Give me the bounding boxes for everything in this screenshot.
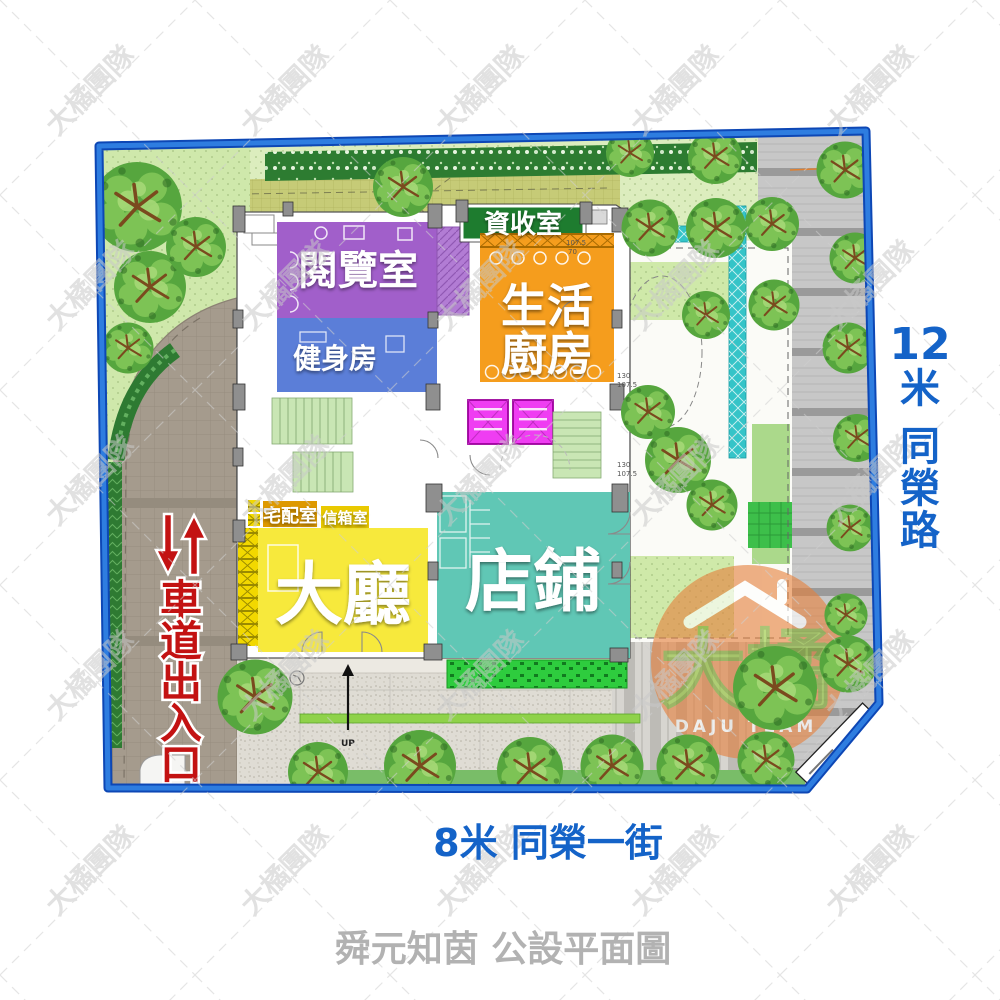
svg-text:130: 130 — [617, 461, 630, 469]
road-width-number: 12 — [889, 322, 950, 368]
site-plan-page: 大橘團隊 — [0, 0, 1000, 1000]
shop-front-hedge — [447, 660, 627, 688]
road-width-unit: 米 — [900, 368, 940, 410]
svg-text:107.5: 107.5 — [617, 381, 637, 389]
svg-text:107.5: 107.5 — [566, 239, 586, 247]
lobby-label: 大廳 — [275, 556, 411, 635]
street-label-bottom: 8米 同榮一街 — [433, 812, 663, 867]
road-name-char: 路 — [900, 510, 940, 552]
road-name-char: 同 — [900, 426, 940, 468]
reading-label: 閱覽室 — [298, 248, 418, 294]
mailbox-label: 信箱室 — [322, 509, 367, 527]
staircase — [293, 452, 353, 492]
shop-label: 店鋪 — [465, 543, 601, 622]
svg-text:口: 口 — [160, 740, 202, 789]
recycle-label: 資收室 — [484, 209, 562, 240]
delivery-label: 宅配室 — [263, 505, 317, 527]
elevator — [468, 400, 508, 444]
svg-text:70: 70 — [568, 248, 577, 256]
kitchen-label-line2: 廚房 — [501, 327, 593, 381]
staircase — [272, 398, 352, 444]
road-name-char: 榮 — [900, 468, 940, 510]
up-label: UP — [341, 739, 355, 749]
svg-text:107.5: 107.5 — [617, 470, 637, 478]
hedge-strip-thin — [300, 714, 640, 723]
gym-label: 健身房 — [293, 342, 377, 375]
kitchen-label-line1: 生活 — [501, 279, 593, 333]
road-label-right: 12 米 同 榮 路 — [888, 322, 952, 552]
svg-text:130: 130 — [617, 372, 630, 380]
page-title: 舜元知茵 公設平面圖 — [335, 920, 672, 972]
